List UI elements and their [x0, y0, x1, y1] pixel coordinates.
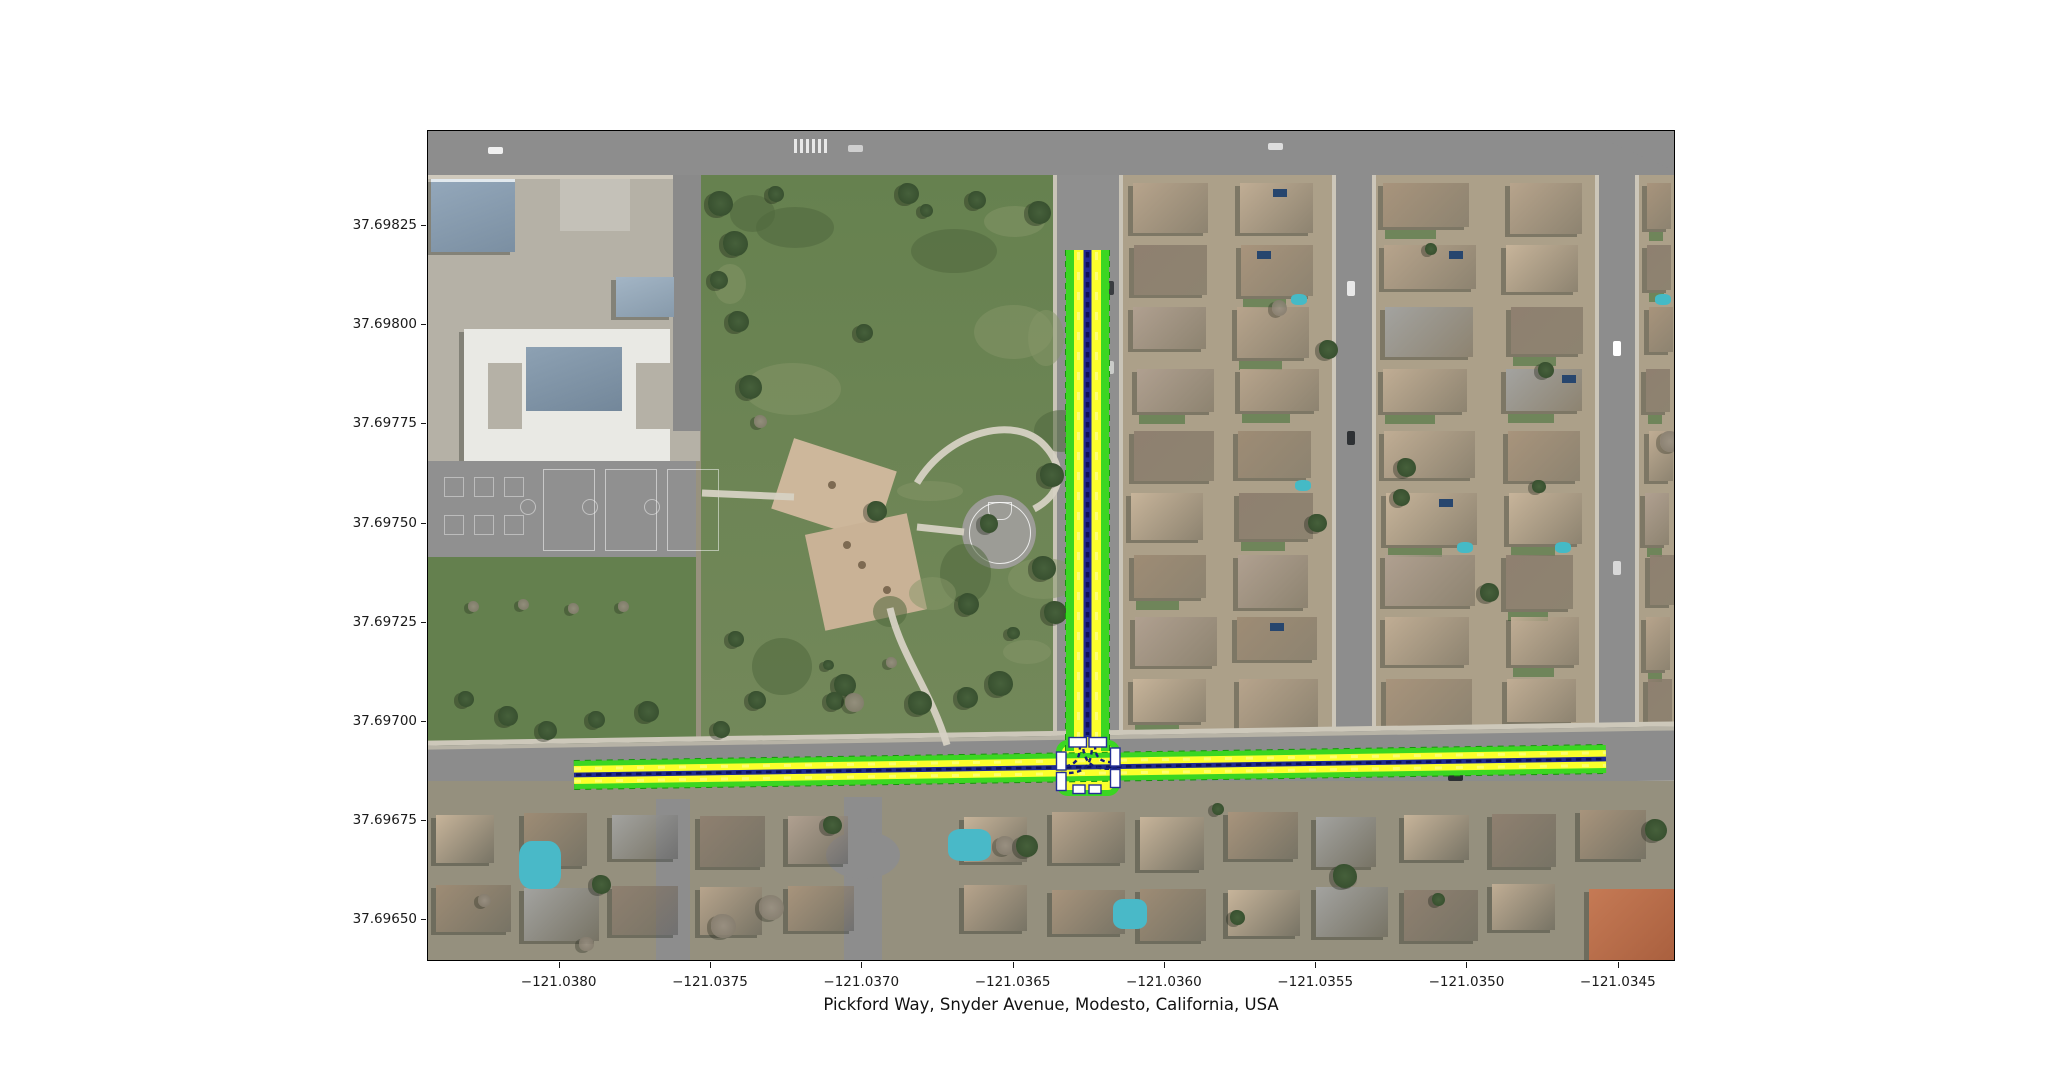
x-tick-label: −121.0350 — [1429, 974, 1505, 990]
y-tick-label: 37.69725 — [0, 614, 417, 630]
lane-overlay-north-south — [1079, 250, 1097, 751]
crosswalk-marking-east — [1111, 770, 1121, 788]
x-tick-label: −121.0370 — [823, 974, 899, 990]
y-tick-label: 37.69650 — [0, 911, 417, 927]
y-tick-mark — [421, 523, 427, 524]
crosswalk-marking-south — [1089, 785, 1101, 794]
crosswalk-marking-east — [1111, 748, 1121, 766]
y-tick-label: 37.69825 — [0, 217, 417, 233]
crosswalk-marking-north — [1089, 738, 1107, 748]
lane-overlay-layer — [428, 131, 1675, 961]
x-tick-label: −121.0355 — [1277, 974, 1353, 990]
x-tick-label: −121.0375 — [672, 974, 748, 990]
x-tick-label: −121.0360 — [1126, 974, 1202, 990]
y-tick-mark — [421, 622, 427, 623]
x-tick-label: −121.0345 — [1580, 974, 1656, 990]
x-tick-mark — [861, 962, 862, 968]
crosswalk-marking-west — [1057, 773, 1067, 791]
figure-title: Pickford Way, Snyder Avenue, Modesto, Ca… — [427, 995, 1675, 1014]
crosswalk-marking-north — [1069, 738, 1087, 748]
y-tick-mark — [421, 721, 427, 722]
lane-overlay-east-west — [574, 753, 1606, 782]
y-tick-mark — [421, 919, 427, 920]
y-tick-label: 37.69775 — [0, 415, 417, 431]
figure-canvas: 37.6982537.6980037.6977537.6975037.69725… — [0, 0, 2047, 1080]
x-tick-mark — [1618, 962, 1619, 968]
y-tick-mark — [421, 820, 427, 821]
x-tick-mark — [1315, 962, 1316, 968]
x-tick-label: −121.0380 — [521, 974, 597, 990]
y-tick-label: 37.69675 — [0, 812, 417, 828]
crosswalk-marking-west — [1057, 752, 1067, 770]
x-tick-label: −121.0365 — [975, 974, 1051, 990]
x-tick-mark — [559, 962, 560, 968]
crosswalk-marking-south — [1073, 785, 1085, 794]
y-tick-label: 37.69700 — [0, 713, 417, 729]
y-tick-mark — [421, 225, 427, 226]
x-tick-mark — [1164, 962, 1165, 968]
y-tick-label: 37.69800 — [0, 316, 417, 332]
map-plot — [427, 130, 1675, 961]
y-tick-mark — [421, 324, 427, 325]
x-tick-mark — [710, 962, 711, 968]
x-tick-mark — [1013, 962, 1014, 968]
y-tick-mark — [421, 423, 427, 424]
x-tick-mark — [1466, 962, 1467, 968]
y-tick-label: 37.69750 — [0, 515, 417, 531]
